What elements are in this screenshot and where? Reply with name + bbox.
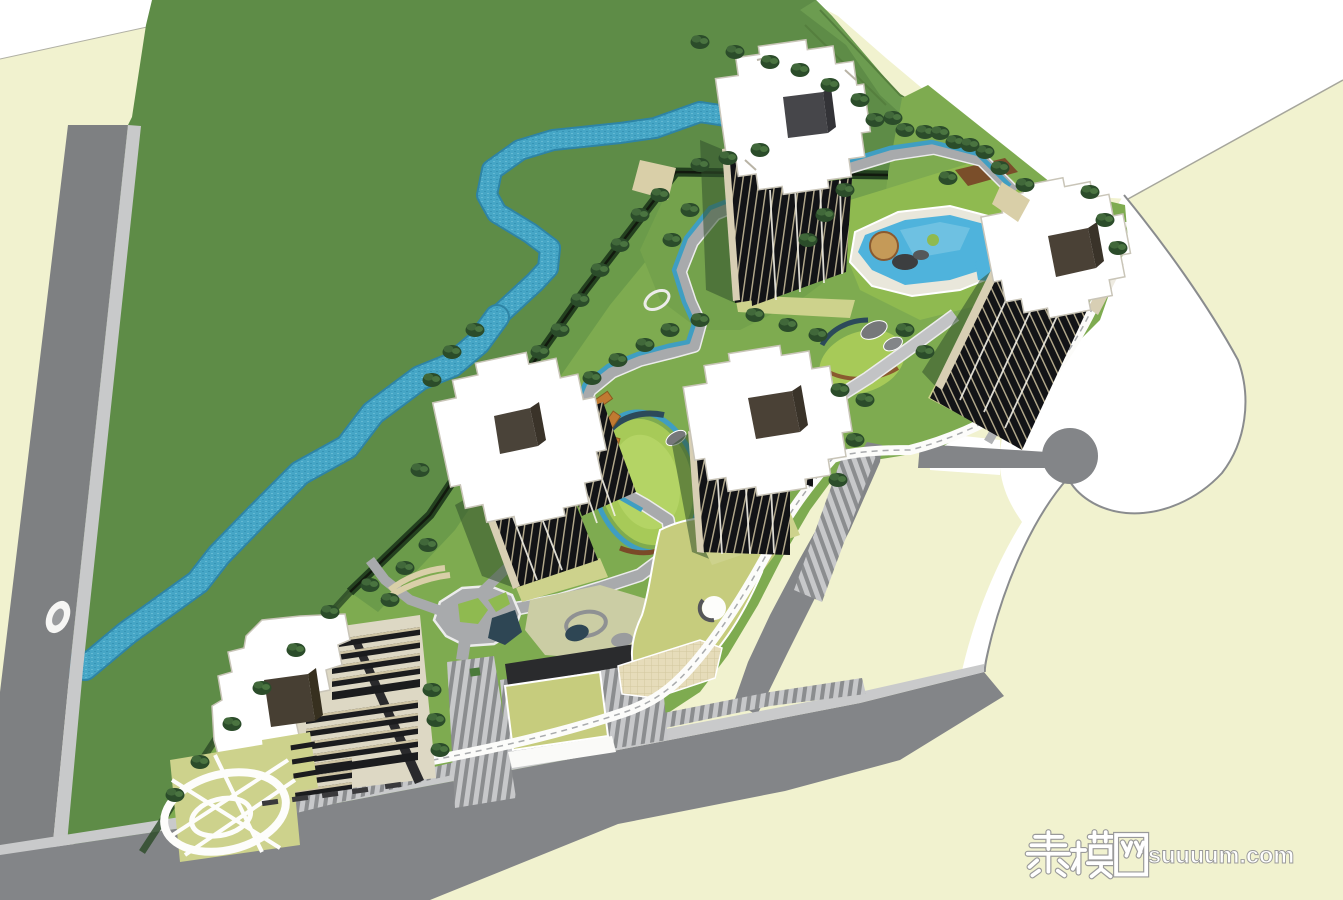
svg-text:suuuum.com: suuuum.com bbox=[1148, 842, 1294, 868]
